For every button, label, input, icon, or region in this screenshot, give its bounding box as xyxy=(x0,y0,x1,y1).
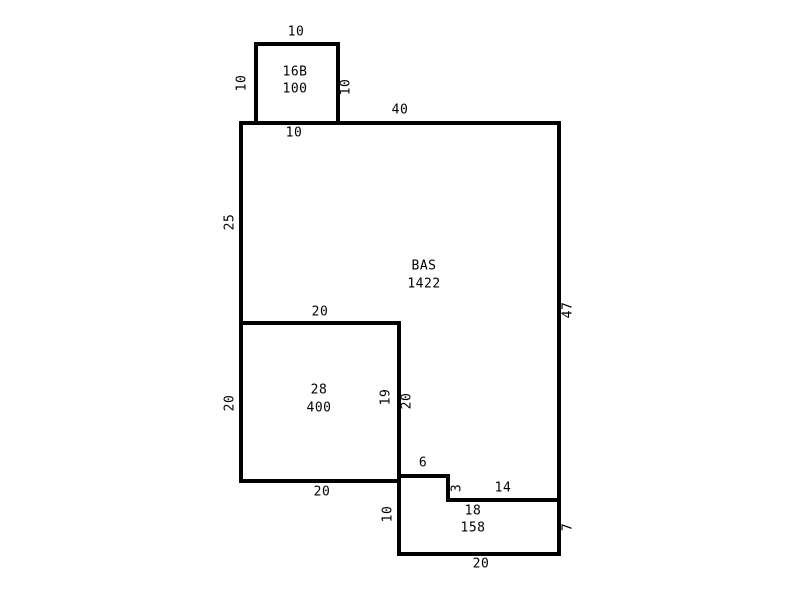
dim-a18-bottom: 20 xyxy=(473,558,490,571)
dim-r28-left: 20 xyxy=(224,395,237,412)
dim-16b-base: 10 xyxy=(286,127,303,140)
dim-r28-bottom: 20 xyxy=(314,486,331,499)
dim-bas-top: 40 xyxy=(392,104,409,117)
dim-step-side: 3 xyxy=(451,484,464,492)
dim-16b-right: 10 xyxy=(340,79,353,96)
area-label-16b: 16B xyxy=(283,66,308,79)
area-sqft-bas: 1422 xyxy=(407,278,440,291)
area-sqft-18: 158 xyxy=(461,522,486,535)
dim-bas-left: 25 xyxy=(224,214,237,231)
dim-r28-right-outer: 20 xyxy=(401,393,414,410)
dim-a18-left: 10 xyxy=(382,506,395,523)
floor-plan-walls xyxy=(0,0,800,600)
dim-16b-top: 10 xyxy=(288,26,305,39)
dim-step-run: 14 xyxy=(495,482,512,495)
wall-step xyxy=(399,476,559,500)
dim-step-top: 6 xyxy=(419,457,427,470)
dim-r28-right-inner: 19 xyxy=(380,389,393,406)
dim-bas-right: 47 xyxy=(562,302,575,319)
dim-a18-right: 7 xyxy=(562,523,575,531)
area-label-28: 28 xyxy=(311,384,328,397)
area-label-bas: BAS xyxy=(412,260,437,273)
area-sqft-16b: 100 xyxy=(283,83,308,96)
dim-16b-left: 10 xyxy=(236,75,249,92)
dim-r28-top: 20 xyxy=(312,306,329,319)
area-label-18: 18 xyxy=(465,505,482,518)
floor-plan-sketch: 10 10 10 10 40 25 47 20 20 19 20 20 6 3 … xyxy=(0,0,800,600)
area-sqft-28: 400 xyxy=(307,402,332,415)
